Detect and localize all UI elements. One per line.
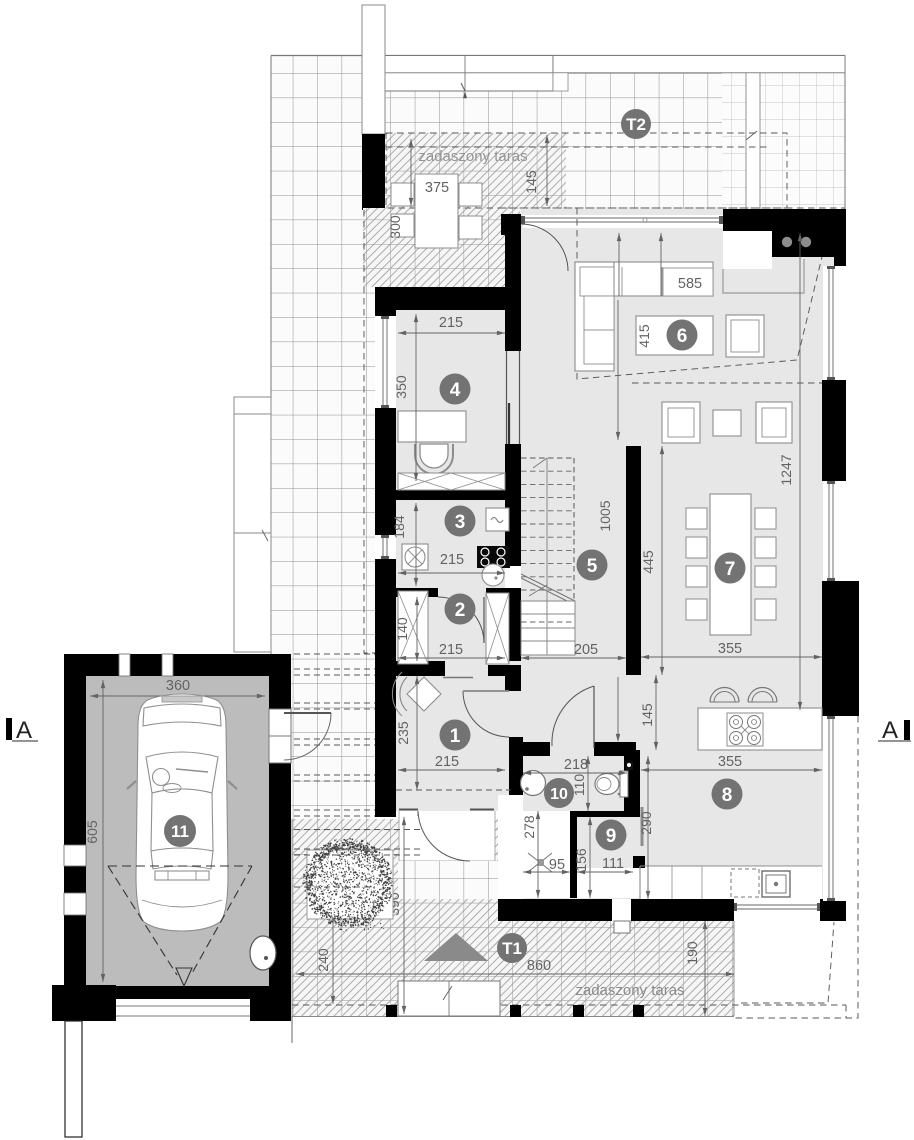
svg-text:445: 445: [640, 550, 656, 574]
svg-text:5: 5: [587, 556, 598, 577]
svg-text:1: 1: [450, 726, 461, 747]
svg-text:2: 2: [455, 600, 466, 621]
svg-text:1247: 1247: [778, 454, 794, 485]
svg-text:9: 9: [606, 826, 617, 847]
svg-text:375: 375: [425, 180, 449, 196]
svg-text:215: 215: [435, 754, 459, 770]
svg-text:205: 205: [574, 642, 598, 658]
svg-text:240: 240: [315, 948, 331, 972]
svg-text:215: 215: [439, 642, 463, 658]
svg-text:8: 8: [722, 785, 733, 806]
svg-text:3: 3: [455, 512, 466, 533]
svg-text:355: 355: [718, 754, 742, 770]
svg-text:215: 215: [439, 315, 463, 331]
svg-text:278: 278: [521, 815, 537, 839]
svg-text:605: 605: [84, 820, 100, 844]
svg-text:7: 7: [725, 559, 736, 580]
svg-text:145: 145: [523, 170, 539, 194]
svg-text:860: 860: [527, 958, 551, 974]
svg-text:10: 10: [550, 786, 568, 803]
svg-text:290: 290: [638, 811, 654, 835]
svg-text:4: 4: [450, 380, 461, 401]
svg-text:156: 156: [573, 848, 589, 872]
svg-text:T2: T2: [626, 115, 646, 134]
svg-text:218: 218: [564, 757, 588, 773]
svg-text:T1: T1: [502, 939, 522, 958]
svg-text:110: 110: [571, 774, 587, 797]
svg-text:215: 215: [440, 552, 464, 568]
svg-text:190: 190: [684, 941, 700, 965]
svg-text:A: A: [882, 717, 898, 744]
svg-text:355: 355: [718, 641, 742, 657]
svg-text:585: 585: [678, 276, 702, 292]
svg-text:360: 360: [166, 678, 190, 694]
svg-text:zadaszony taras: zadaszony taras: [575, 982, 684, 999]
svg-text:145: 145: [639, 703, 655, 727]
svg-text:111: 111: [602, 856, 624, 872]
svg-text:184: 184: [391, 515, 407, 539]
svg-text:11: 11: [171, 822, 189, 841]
svg-text:415: 415: [636, 324, 652, 348]
svg-text:1005: 1005: [597, 500, 613, 531]
svg-text:140: 140: [394, 617, 410, 641]
svg-text:A: A: [16, 717, 32, 744]
svg-text:350: 350: [393, 375, 409, 399]
svg-text:300: 300: [387, 215, 403, 239]
svg-text:235: 235: [395, 721, 411, 745]
svg-text:6: 6: [677, 326, 688, 347]
svg-text:zadaszony taras: zadaszony taras: [418, 148, 527, 165]
